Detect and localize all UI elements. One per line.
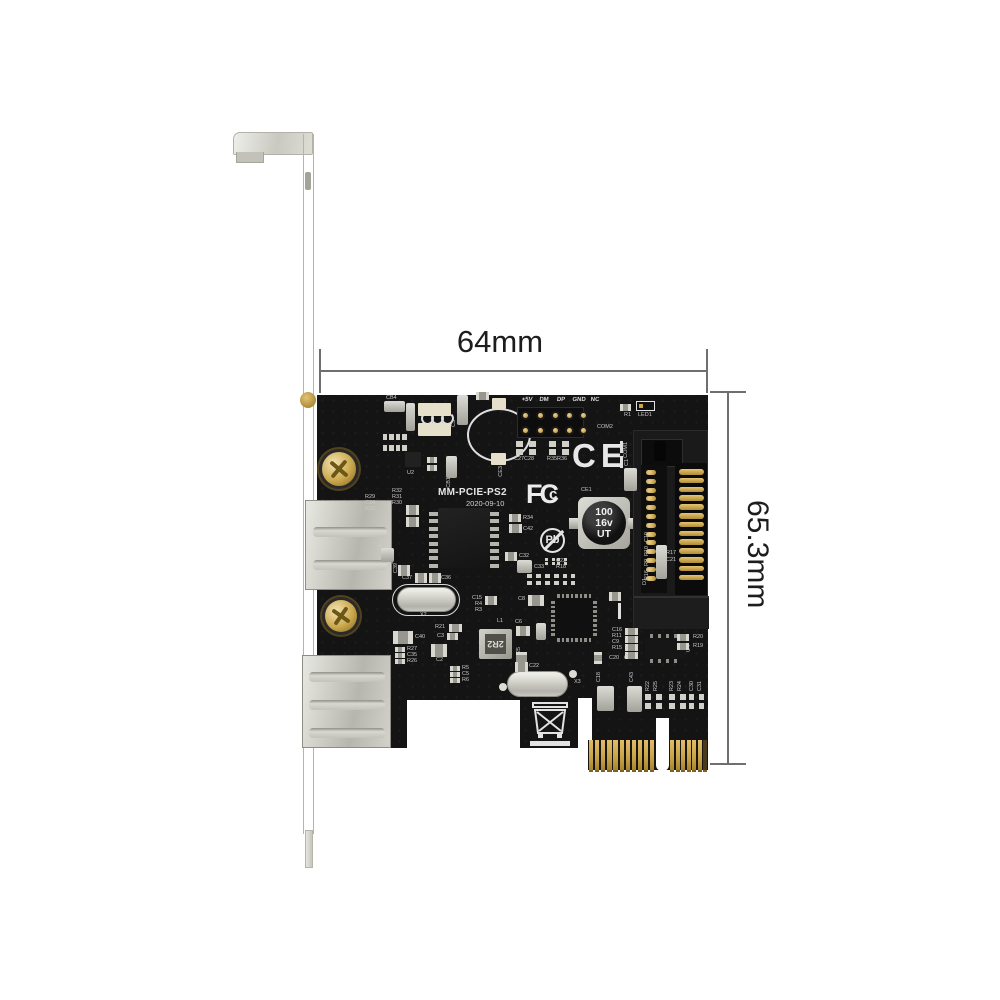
pcie-finger <box>607 740 611 772</box>
pad <box>529 449 536 455</box>
passive-p <box>449 624 462 632</box>
passive-p <box>427 465 437 471</box>
header-pin <box>581 428 586 433</box>
sata-spring-contact <box>646 488 656 493</box>
passive-s <box>624 468 637 491</box>
sata-spring-contact <box>646 523 656 528</box>
chip-pin <box>551 606 555 609</box>
end <box>609 592 612 601</box>
passive-p <box>450 666 460 671</box>
passive-pad <box>418 423 451 436</box>
pcie-finger <box>620 740 624 772</box>
passive-p <box>393 631 413 644</box>
silk-label-r21: R21 <box>435 625 445 631</box>
end <box>476 392 479 400</box>
header-pin <box>567 413 572 418</box>
silk-label-c36: C36 <box>441 576 451 582</box>
silk-label-c8: C8 <box>518 597 525 603</box>
silk-label-x3: X3 <box>574 680 581 686</box>
chip-pin <box>658 659 661 663</box>
pad <box>402 445 406 451</box>
chip-pin <box>551 633 555 636</box>
pad <box>557 562 560 565</box>
controller-chip <box>438 508 490 568</box>
end <box>395 647 398 652</box>
pad <box>529 441 536 447</box>
chip-pin <box>575 594 578 598</box>
end <box>407 565 410 576</box>
pad <box>554 581 559 585</box>
silk-label-r15: R15 <box>612 646 622 652</box>
bracket-slot <box>305 172 311 190</box>
weee-icon <box>521 699 577 747</box>
passive-s <box>517 560 532 573</box>
passive-g <box>516 441 536 455</box>
pad <box>389 445 393 451</box>
silk-label-ce3: CE3 <box>499 466 505 477</box>
pcie-finger <box>595 740 599 772</box>
passive-p <box>395 653 405 658</box>
electrolytic-capacitor: 100 16v UT <box>582 501 626 545</box>
silk-label-r17: R17 <box>666 551 676 557</box>
height-dimension-tick-bottom <box>710 763 746 765</box>
chip-pin <box>490 527 499 531</box>
header-pin <box>523 428 528 433</box>
height-dimension-label: 65.3mm <box>740 500 774 608</box>
passive-g8 <box>383 434 407 451</box>
header-pin <box>538 413 543 418</box>
passive-p <box>415 573 427 583</box>
end <box>457 672 460 677</box>
silk-label-c37: C37 <box>402 576 412 582</box>
silk-label-r24: R24 <box>678 681 684 691</box>
chip-pin <box>589 638 592 642</box>
sata-gold-finger <box>679 513 704 519</box>
chip-pin <box>551 624 555 627</box>
silk-label-c22: C22 <box>529 664 539 670</box>
silk-label-r10: R10 <box>645 546 651 556</box>
chip-pin <box>551 619 555 622</box>
silk-label-r22: R22 <box>646 681 652 691</box>
end <box>686 643 689 650</box>
end <box>434 465 437 471</box>
silk-label-c18: C18 <box>597 672 603 682</box>
silk-label-r35: R35 <box>547 457 557 463</box>
passive-g <box>527 574 541 585</box>
header-pin-label: +5V <box>521 397 532 403</box>
pad <box>645 694 651 700</box>
chip-pin <box>429 564 438 568</box>
header-pin-label: DP <box>557 397 566 403</box>
width-dimension-tick-left <box>319 349 321 393</box>
pad <box>680 694 686 700</box>
passive-p <box>625 644 638 651</box>
chip-pin <box>566 594 569 598</box>
bracket-rivet-top <box>300 392 316 408</box>
chip-pin <box>429 519 438 523</box>
pcie-finger <box>589 740 593 772</box>
passive-p <box>485 596 497 605</box>
header-pin <box>538 428 543 433</box>
end <box>625 644 628 651</box>
end <box>635 652 638 659</box>
pad <box>699 703 704 709</box>
passive-d <box>569 670 577 678</box>
passive-g <box>689 694 704 709</box>
passive-s <box>656 545 667 579</box>
silk-label-r16: R16 <box>645 570 651 580</box>
pad <box>396 445 400 451</box>
passive-p <box>515 662 528 672</box>
passive-g <box>545 558 555 565</box>
chip-pin <box>666 659 669 663</box>
silk-label-r25: R25 <box>654 681 660 691</box>
end <box>457 678 460 683</box>
chip-pin <box>589 594 592 598</box>
silk-label-c21: C21 <box>666 558 676 564</box>
width-dimension-tick-right <box>706 349 708 393</box>
passive-s <box>446 456 457 478</box>
capacitor-lead-left <box>569 518 578 529</box>
sata-gold-finger <box>679 478 704 484</box>
passive-p <box>625 652 638 659</box>
pad <box>564 562 567 565</box>
pad <box>680 703 686 709</box>
header-pin <box>553 428 558 433</box>
silk-label-com1: COM1 <box>624 442 630 458</box>
end <box>450 678 453 683</box>
end <box>635 636 638 643</box>
board-model-silkscreen: MM-PCIE-PS2 <box>438 487 507 498</box>
end <box>625 628 628 635</box>
pad <box>536 574 541 578</box>
end <box>509 514 512 522</box>
end <box>677 634 680 641</box>
chip-pin <box>490 564 499 568</box>
sata-gold-finger <box>679 575 704 581</box>
pcie-finger <box>626 740 630 772</box>
pcie-finger <box>698 740 702 772</box>
pad <box>552 562 555 565</box>
sata-gold-finger <box>679 557 704 563</box>
chip-pin <box>429 549 438 553</box>
qfn-chip <box>555 598 593 638</box>
end <box>415 573 418 583</box>
passive-p <box>450 672 460 677</box>
height-dimension-line <box>727 392 729 765</box>
silk-label-r19: R19 <box>693 644 703 650</box>
end <box>406 517 409 527</box>
pad <box>656 694 662 700</box>
pad <box>562 441 569 447</box>
end <box>486 392 489 400</box>
pad <box>383 445 387 451</box>
passive-p <box>476 392 489 400</box>
chip-pin <box>571 594 574 598</box>
crystal-x2 <box>397 587 456 612</box>
end <box>635 644 638 651</box>
chip-pin <box>666 634 669 638</box>
passive-d <box>499 683 507 691</box>
pad <box>545 558 548 561</box>
silk-label-j4: J4 <box>383 678 389 684</box>
chip-pin <box>580 638 583 642</box>
passive-s <box>627 686 642 712</box>
silk-label-c33: C33 <box>534 565 544 571</box>
pad <box>552 558 555 561</box>
silk-label-r9: R9 <box>645 559 651 566</box>
pad <box>689 694 694 700</box>
silk-label-com2: COM2 <box>597 425 613 431</box>
passive-pad <box>492 398 506 409</box>
sata-spring-contact <box>646 496 656 501</box>
silk-label-r3: R3 <box>475 608 482 614</box>
sata-spring-contact <box>646 470 656 475</box>
silk-label-r34: R34 <box>523 516 533 522</box>
chip-pin <box>551 615 555 618</box>
sata-spring-contact <box>646 479 656 484</box>
power-inductor-marking: 2R2 <box>485 634 506 654</box>
end <box>515 662 518 672</box>
passive-p <box>620 404 631 411</box>
pad <box>549 449 556 455</box>
end <box>416 517 419 527</box>
end <box>528 595 532 606</box>
end <box>402 653 405 658</box>
passive-w <box>636 401 655 411</box>
silk-label-c3: C3 <box>437 634 444 640</box>
pad <box>402 434 406 440</box>
crystal-x3 <box>507 671 568 697</box>
silk-label-x2: X2 <box>420 613 427 619</box>
pad <box>562 449 569 455</box>
sata-gold-finger <box>679 522 704 528</box>
silk-label-u2: U2 <box>407 471 414 477</box>
silk-label-c42: C42 <box>523 527 533 533</box>
end <box>514 552 517 561</box>
pad <box>545 562 548 565</box>
silk-label-r30: R30 <box>392 501 402 507</box>
passive-sot <box>405 452 421 467</box>
passive-p <box>509 524 522 533</box>
end <box>402 647 405 652</box>
passive-p <box>406 505 419 515</box>
pad <box>689 703 694 709</box>
chip-pin <box>562 638 565 642</box>
passive-g <box>557 558 567 565</box>
end <box>450 672 453 677</box>
chip-pin <box>650 634 653 638</box>
pcie-finger <box>670 740 674 772</box>
end <box>625 652 628 659</box>
header-pin-label: GND <box>572 397 586 403</box>
pad <box>527 581 532 585</box>
pcie-finger <box>681 740 685 772</box>
silk-label-c30: C30 <box>690 681 696 691</box>
sata-gold-finger <box>679 495 704 501</box>
passive-g <box>545 574 559 585</box>
silk-label-c1: C1 <box>625 459 631 466</box>
end <box>455 633 458 640</box>
header-pin <box>553 413 558 418</box>
silk-bar-3 <box>618 603 621 619</box>
pin-header <box>517 407 584 438</box>
silk-label-ce1: CE1 <box>581 488 592 494</box>
silk-label-c32: C32 <box>519 554 529 560</box>
end <box>540 595 544 606</box>
port-ridge <box>309 728 385 738</box>
pcie-finger <box>638 740 642 772</box>
silk-label-c40: C40 <box>415 635 425 641</box>
pad <box>389 434 393 440</box>
silk-label-c27: C27 <box>514 457 524 463</box>
chip-pin <box>429 534 438 538</box>
chip-pin <box>490 512 499 516</box>
pad <box>563 581 567 585</box>
chip-pin <box>593 624 597 627</box>
end <box>594 661 602 664</box>
port-ridge <box>313 560 387 570</box>
silk-label-c28: C28 <box>524 457 534 463</box>
passive-p <box>395 659 405 664</box>
width-dimension-line <box>320 370 708 372</box>
silk-label-led1: LED1 <box>638 413 652 419</box>
pad <box>564 558 567 561</box>
chip-pin <box>490 519 499 523</box>
pad <box>527 574 532 578</box>
passive-p <box>677 634 689 641</box>
pcie-key-notch <box>656 718 669 771</box>
sata-bottom-bar <box>634 596 709 629</box>
end <box>457 666 460 671</box>
passive-p <box>431 644 447 657</box>
chip-pin <box>593 615 597 618</box>
pad <box>557 558 560 561</box>
chip-pin <box>593 606 597 609</box>
end <box>438 573 441 583</box>
bracket-rail-tip <box>305 830 313 868</box>
pcie-finger <box>692 740 696 772</box>
end <box>635 628 638 635</box>
chip-pin <box>566 638 569 642</box>
sata-connector <box>633 430 708 628</box>
pcie-finger <box>650 740 654 772</box>
end <box>459 624 462 632</box>
end <box>398 565 401 576</box>
silk-label-r1: R1 <box>624 413 631 419</box>
pad <box>549 441 556 447</box>
end <box>395 659 398 664</box>
silk-label-c10: C10 <box>645 532 651 542</box>
passive-g <box>549 441 569 455</box>
passive-p <box>516 626 530 636</box>
chip-pin <box>593 619 597 622</box>
passive-s <box>406 403 415 431</box>
pad <box>545 574 550 578</box>
silk-label-r26: R26 <box>407 659 417 665</box>
end <box>443 644 447 657</box>
end <box>431 644 435 657</box>
chip-pin <box>593 633 597 636</box>
capacitor-marking-series: UT <box>582 529 626 540</box>
pcie-finger <box>601 740 605 772</box>
end <box>424 573 427 583</box>
pcie-finger <box>613 740 617 772</box>
chip-pin <box>490 534 499 538</box>
pad <box>669 703 675 709</box>
passive-p <box>406 517 419 527</box>
passive-p <box>505 552 517 561</box>
pcie-finger <box>644 740 648 772</box>
silk-label-cb1: CB1 <box>447 477 453 488</box>
chip-pin <box>429 556 438 560</box>
pad <box>656 703 662 709</box>
pad <box>396 434 400 440</box>
board-date-silkscreen: 2020-09-10 <box>466 499 504 508</box>
chip-pin <box>551 629 555 632</box>
bracket-arm-tab <box>236 152 264 163</box>
chip-pin <box>650 659 653 663</box>
ps2-port-bottom <box>302 655 391 748</box>
end <box>427 465 430 471</box>
chip-pin <box>557 638 560 642</box>
end <box>447 633 450 640</box>
silk-label-c31: C31 <box>698 681 704 691</box>
silk-label-r18: R18 <box>556 565 566 571</box>
passive-p <box>429 573 441 583</box>
port-ridge <box>309 700 385 710</box>
sata-gold-finger <box>679 548 704 554</box>
header-pin <box>581 413 586 418</box>
silk-label-r20: R20 <box>693 635 703 641</box>
chip-pin <box>593 629 597 632</box>
passive-p <box>625 628 638 635</box>
passive-g <box>563 574 575 585</box>
end <box>408 631 413 644</box>
passive-pad <box>418 403 451 416</box>
end <box>406 505 409 515</box>
silk-label-r36: R36 <box>557 457 567 463</box>
chip-pin <box>584 638 587 642</box>
led-dot <box>639 404 643 408</box>
header-pin <box>523 413 528 418</box>
passive-p <box>395 647 405 652</box>
end <box>434 457 437 463</box>
header-pin-label: DM <box>539 397 549 403</box>
end <box>416 505 419 515</box>
end <box>526 626 530 636</box>
height-dimension-tick-top <box>710 391 746 393</box>
pad <box>563 574 567 578</box>
chip-pin <box>429 512 438 516</box>
end <box>509 524 512 533</box>
sata-gold-finger <box>679 504 704 510</box>
end <box>518 514 521 522</box>
chip-pin <box>429 527 438 531</box>
end <box>525 662 528 672</box>
chip-pin <box>551 610 555 613</box>
pad <box>699 694 704 700</box>
silk-label-c20: C20 <box>609 656 619 662</box>
chip-pin <box>674 659 677 663</box>
fcc-logo: FCc <box>526 479 557 510</box>
pad <box>536 581 541 585</box>
sata-spring-contact <box>646 505 656 510</box>
end <box>395 653 398 658</box>
passive-p <box>450 678 460 683</box>
end <box>628 404 631 411</box>
sata-gold-finger <box>679 531 704 537</box>
